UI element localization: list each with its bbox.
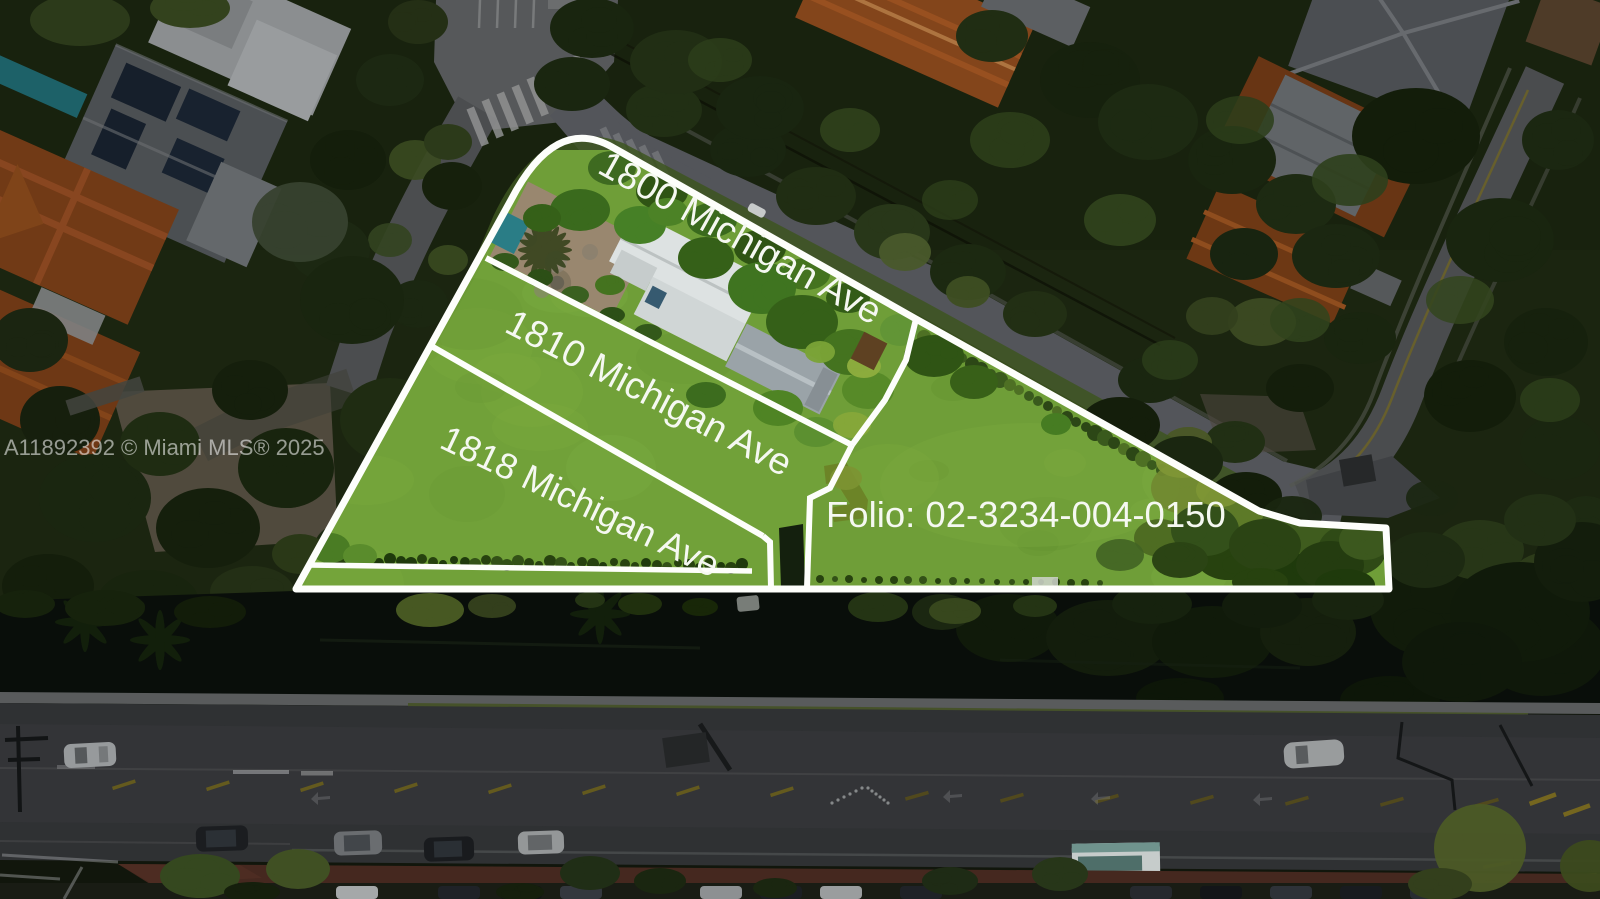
svg-text:A11892392 © Miami MLS® 2025: A11892392 © Miami MLS® 2025 xyxy=(4,435,325,460)
svg-text:Folio: 02-3234-004-0150: Folio: 02-3234-004-0150 xyxy=(826,494,1226,535)
